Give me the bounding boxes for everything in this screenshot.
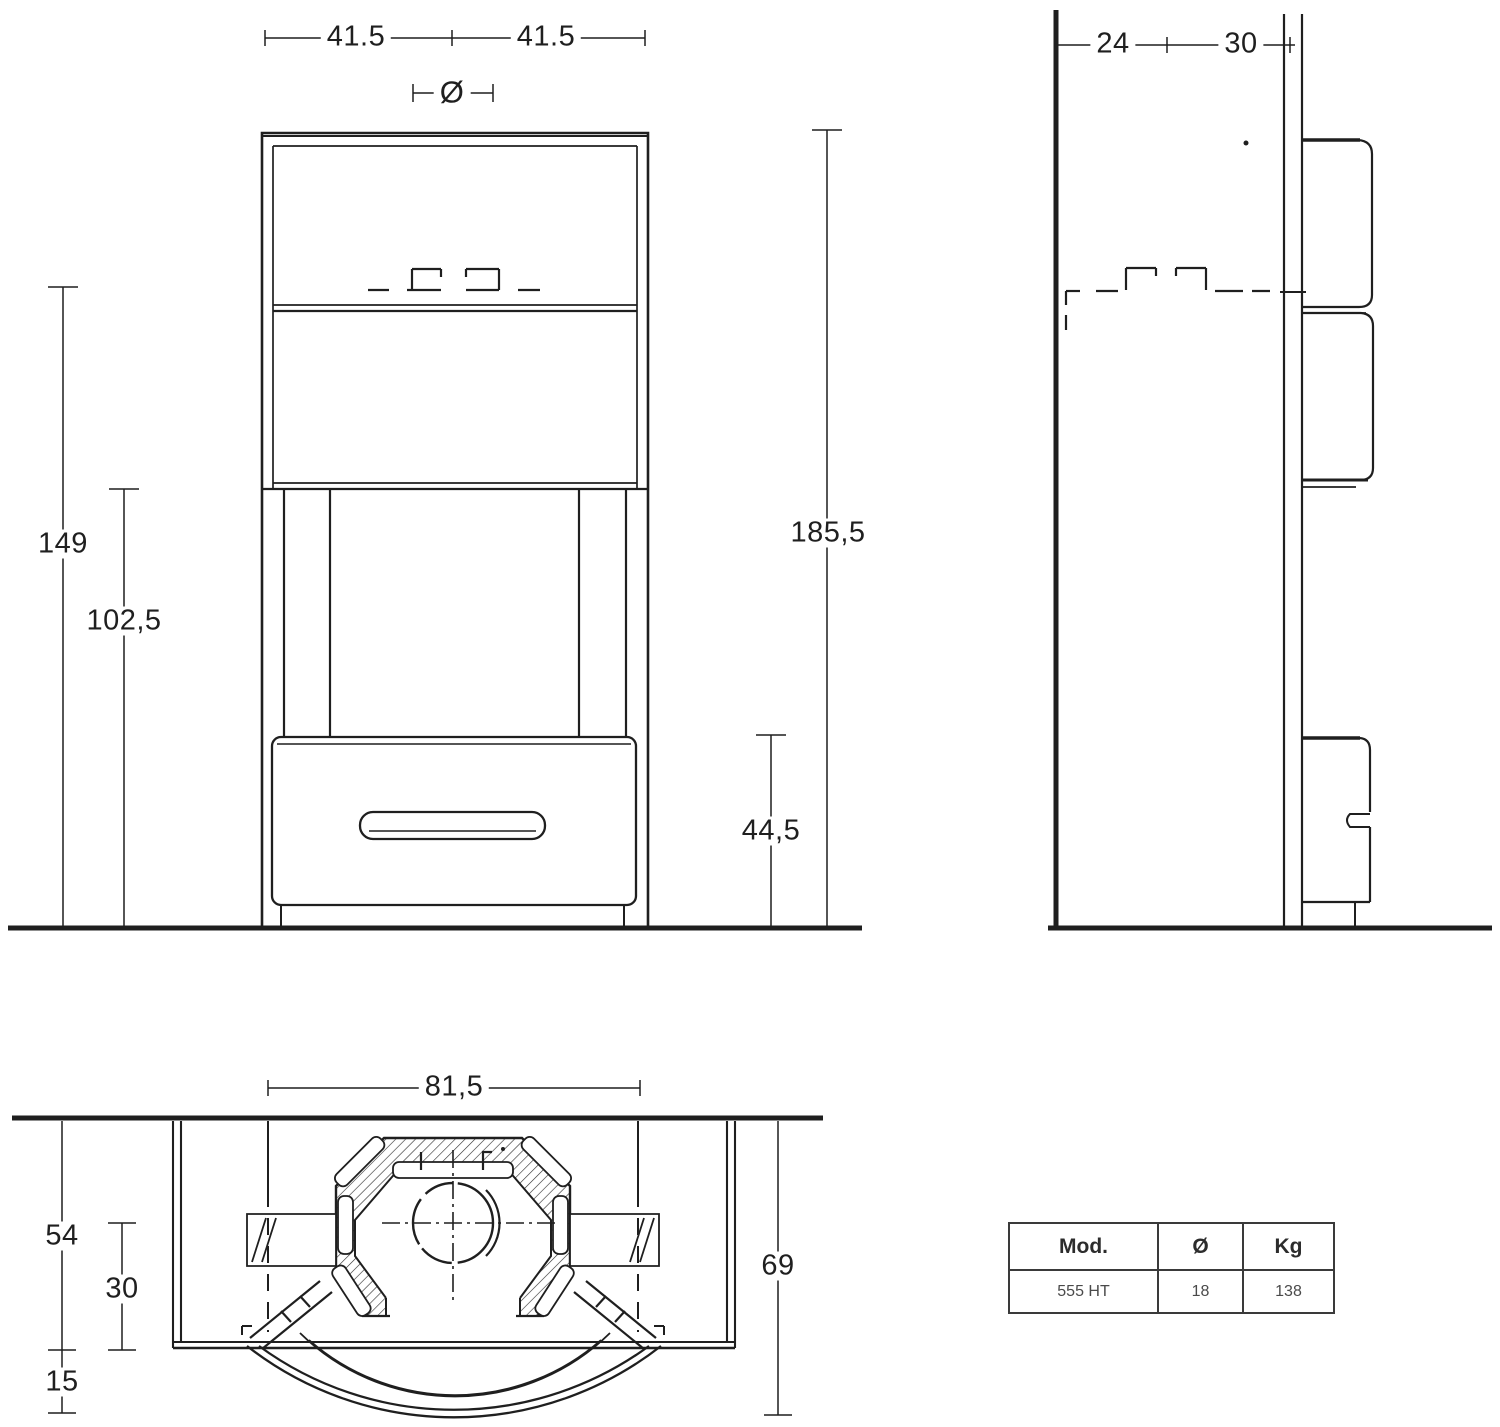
side-lower-box: [1302, 738, 1370, 927]
side-middle-box: [1302, 313, 1373, 487]
front-body-outline: [262, 133, 648, 927]
dim-label-outlet-height: 102,5: [80, 607, 167, 636]
spec-table-data-row: 555 HT 18 138: [1009, 1270, 1334, 1313]
spec-value-model: 555 HT: [1009, 1270, 1158, 1313]
spec-table-header-row: Mod. Ø Kg: [1009, 1223, 1334, 1270]
technical-drawing-canvas: 41.5 41.5 Ø 149 102,5 185,5 44,5 24 30 8…: [0, 0, 1500, 1427]
spec-header-weight: Kg: [1243, 1223, 1334, 1270]
flue-diameter-symbol: Ø: [434, 77, 471, 108]
spec-header-diameter: Ø: [1158, 1223, 1243, 1270]
side-back-panel: [1280, 14, 1306, 926]
dim-label-flue-to-front: 30: [1218, 30, 1263, 59]
spec-value-weight: 138: [1243, 1270, 1334, 1313]
dim-label-wall-to-flue: 24: [1090, 30, 1135, 59]
dim-label-total-height: 185,5: [784, 519, 871, 548]
front-base: [281, 905, 624, 926]
spec-table: Mod. Ø Kg 555 HT 18 138: [1008, 1222, 1335, 1314]
reference-dot: [1244, 141, 1249, 146]
dim-label-wall-to-panel: 54: [39, 1222, 84, 1251]
side-top-box: [1302, 140, 1372, 313]
dim-label-overall-width: 81,5: [419, 1073, 489, 1102]
dim-label-firebox-floor: 44,5: [736, 817, 806, 846]
plan-bow-door-arcs: [247, 1333, 661, 1417]
front-drawer: [272, 737, 636, 905]
side-flue-hidden-outline: [1066, 141, 1270, 331]
spec-value-diameter: 18: [1158, 1270, 1243, 1313]
spec-header-model: Mod.: [1009, 1223, 1158, 1270]
dim-label-flue-to-panel: 30: [99, 1275, 144, 1304]
dim-label-half-width-right: 41.5: [511, 23, 581, 52]
side-view-drawing: [1020, 0, 1500, 960]
plan-dimension-lines: [48, 1080, 792, 1415]
front-flue-hidden-outline: [368, 269, 540, 290]
dim-label-door-projection: 15: [39, 1368, 84, 1397]
drawer-handle: [360, 812, 545, 839]
dim-label-half-width-left: 41.5: [321, 23, 391, 52]
dim-label-total-depth: 69: [755, 1252, 800, 1281]
dim-label-flue-rear-height: 149: [32, 530, 94, 559]
front-firebox-columns: [284, 489, 626, 737]
front-dimension-lines: [48, 30, 842, 927]
